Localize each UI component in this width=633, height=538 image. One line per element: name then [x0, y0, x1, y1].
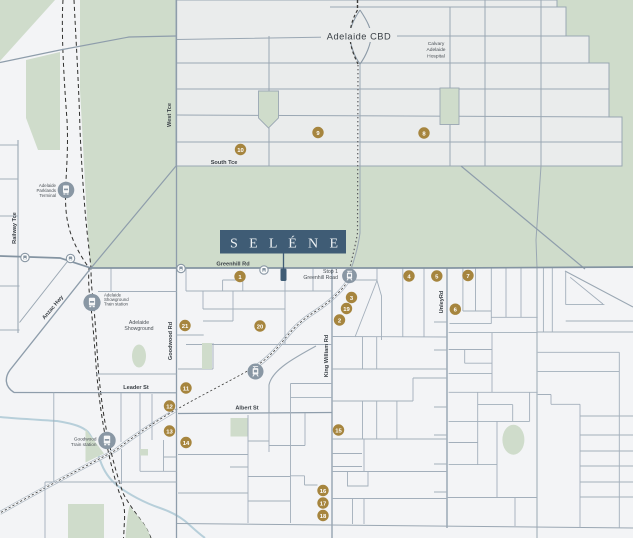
- svg-text:Greenhill Rd: Greenhill Rd: [216, 262, 250, 268]
- svg-text:17: 17: [320, 501, 327, 507]
- svg-text:King William Rd: King William Rd: [324, 334, 330, 377]
- svg-text:18: 18: [320, 514, 327, 520]
- svg-text:South Tce: South Tce: [211, 160, 238, 166]
- svg-text:Adelaide CBD: Adelaide CBD: [327, 32, 391, 42]
- svg-text:19: 19: [343, 307, 350, 313]
- svg-text:Showground: Showground: [124, 326, 153, 332]
- svg-text:10: 10: [237, 148, 244, 154]
- svg-text:13: 13: [166, 429, 173, 435]
- svg-text:21: 21: [182, 324, 189, 330]
- svg-text:Terminal: Terminal: [39, 193, 56, 198]
- svg-text:Goodwood: Goodwood: [74, 437, 97, 442]
- svg-text:Goodwood Rd: Goodwood Rd: [168, 321, 174, 360]
- svg-text:West Tce: West Tce: [167, 103, 173, 127]
- svg-text:12: 12: [166, 404, 173, 410]
- svg-text:Leader St: Leader St: [123, 385, 149, 391]
- svg-text:Train station: Train station: [71, 442, 97, 447]
- svg-text:Train station: Train station: [104, 302, 129, 307]
- svg-text:UnleyRd: UnleyRd: [439, 290, 445, 313]
- svg-text:Adelaide: Adelaide: [426, 47, 445, 53]
- svg-text:20: 20: [257, 324, 264, 330]
- svg-text:Railway Tce: Railway Tce: [12, 212, 18, 244]
- svg-text:16: 16: [320, 489, 327, 495]
- svg-text:11: 11: [183, 386, 190, 392]
- svg-text:Albert St: Albert St: [235, 406, 258, 412]
- svg-text:15: 15: [335, 428, 342, 434]
- svg-text:Hospital: Hospital: [427, 53, 445, 59]
- svg-text:Greenhill Road: Greenhill Road: [303, 275, 338, 281]
- svg-text:Calvary: Calvary: [428, 41, 445, 47]
- svg-text:14: 14: [183, 441, 190, 447]
